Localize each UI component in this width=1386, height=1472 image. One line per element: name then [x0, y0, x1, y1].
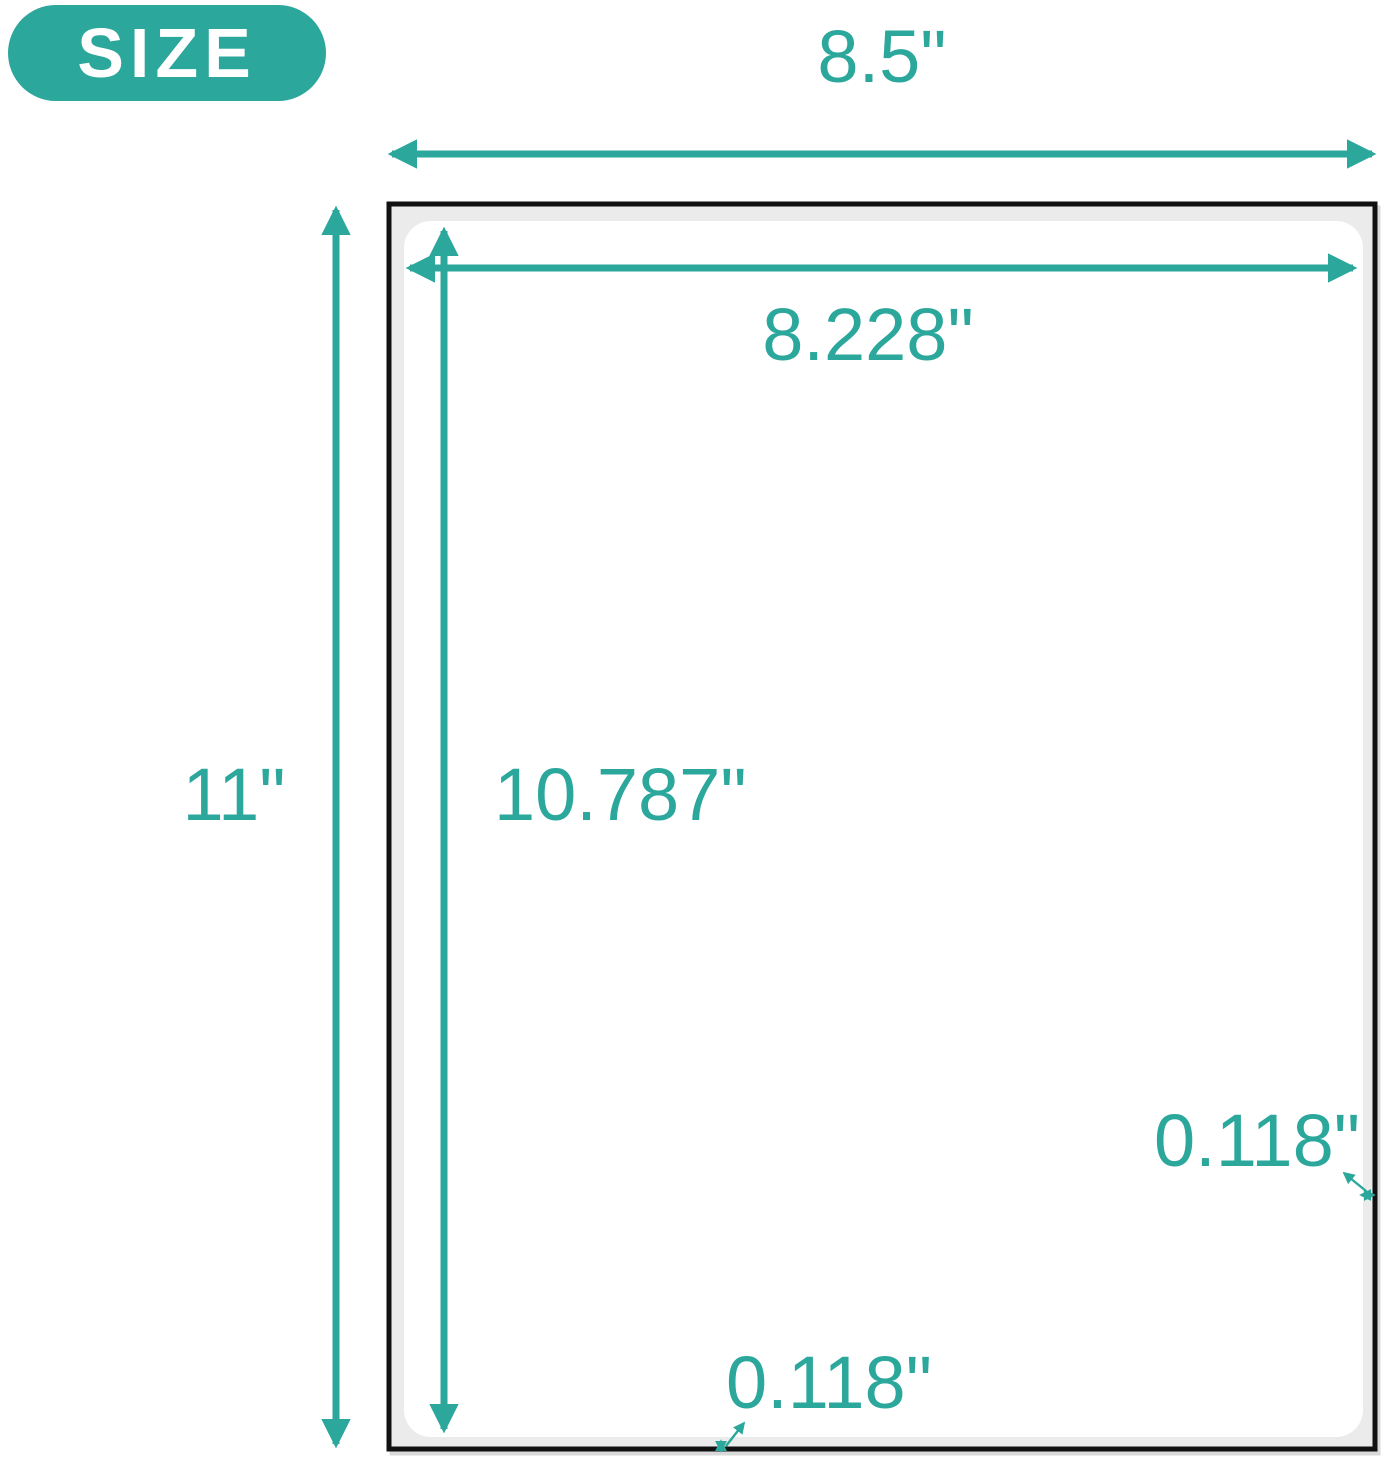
bottom-margin-dimension: 0.118"	[726, 1344, 932, 1422]
sheet-height-dimension: 11"	[149, 756, 319, 834]
size-diagram: SIZE 8.5" 8.228"	[0, 0, 1386, 1472]
label-height-dimension: 10.787"	[494, 756, 747, 834]
right-margin-dimension: 0.118"	[1108, 1102, 1360, 1180]
dimension-drawing	[0, 0, 1386, 1472]
sheet-width-dimension: 8.5"	[387, 18, 1377, 96]
label-width-dimension: 8.228"	[387, 296, 1349, 374]
